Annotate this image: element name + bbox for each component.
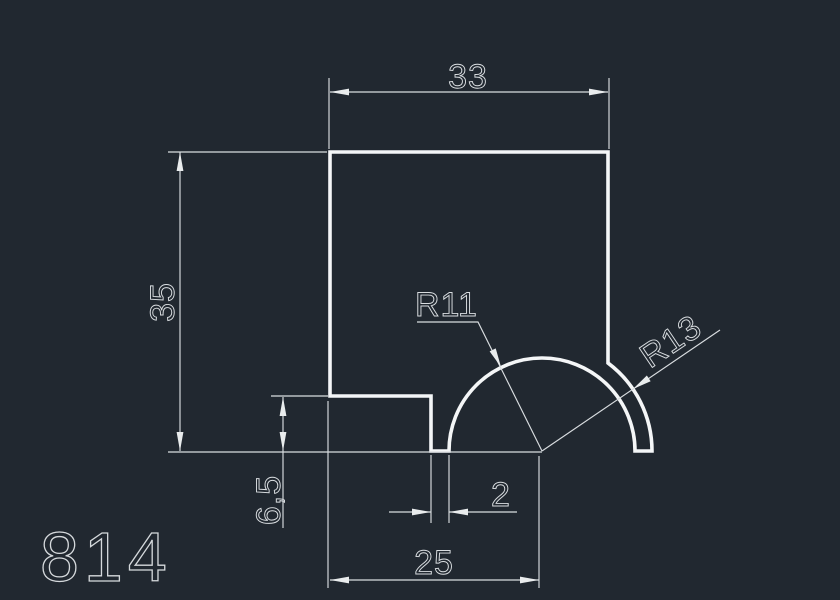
- dim-value-left-height: 35: [144, 282, 182, 322]
- arrowhead-left-icon: [449, 509, 468, 516]
- dim-value-inner-radius: R11: [415, 286, 478, 324]
- arrowhead-left-icon: [330, 577, 349, 584]
- dim-slot-width: 2: [389, 455, 517, 523]
- dim-left-height: 35: [144, 152, 542, 452]
- radius-dim-inner: R11: [415, 286, 542, 451]
- profile-path: [330, 152, 652, 451]
- arrowhead-up-icon: [280, 397, 287, 416]
- dim-value-slot-width: 2: [491, 476, 511, 514]
- dim-value-bottom-width: 25: [414, 544, 454, 582]
- dim-top-width: 33: [329, 58, 609, 149]
- arrowhead-right-icon: [520, 577, 539, 584]
- dim-value-outer-radius: R13: [633, 308, 708, 376]
- profile-outline: [330, 152, 652, 451]
- dim-step-height: 6,5: [250, 396, 328, 528]
- arrowhead-up-icon: [177, 152, 184, 171]
- drawing-canvas[interactable]: 33 35 6,5 2 25 R11: [0, 0, 840, 600]
- arrowhead-right-icon: [589, 89, 608, 96]
- arrowhead-down-icon: [280, 432, 287, 451]
- dim-value-step-height: 6,5: [250, 475, 288, 525]
- cad-drawing: 33 35 6,5 2 25 R11: [0, 0, 840, 600]
- arrowhead-right-icon: [412, 509, 431, 516]
- arrowhead-left-icon: [330, 89, 349, 96]
- leader-line: [417, 322, 542, 451]
- dim-value-top-width: 33: [448, 58, 488, 96]
- part-number-label: 814: [40, 518, 172, 596]
- arrowhead-down-icon: [177, 432, 184, 451]
